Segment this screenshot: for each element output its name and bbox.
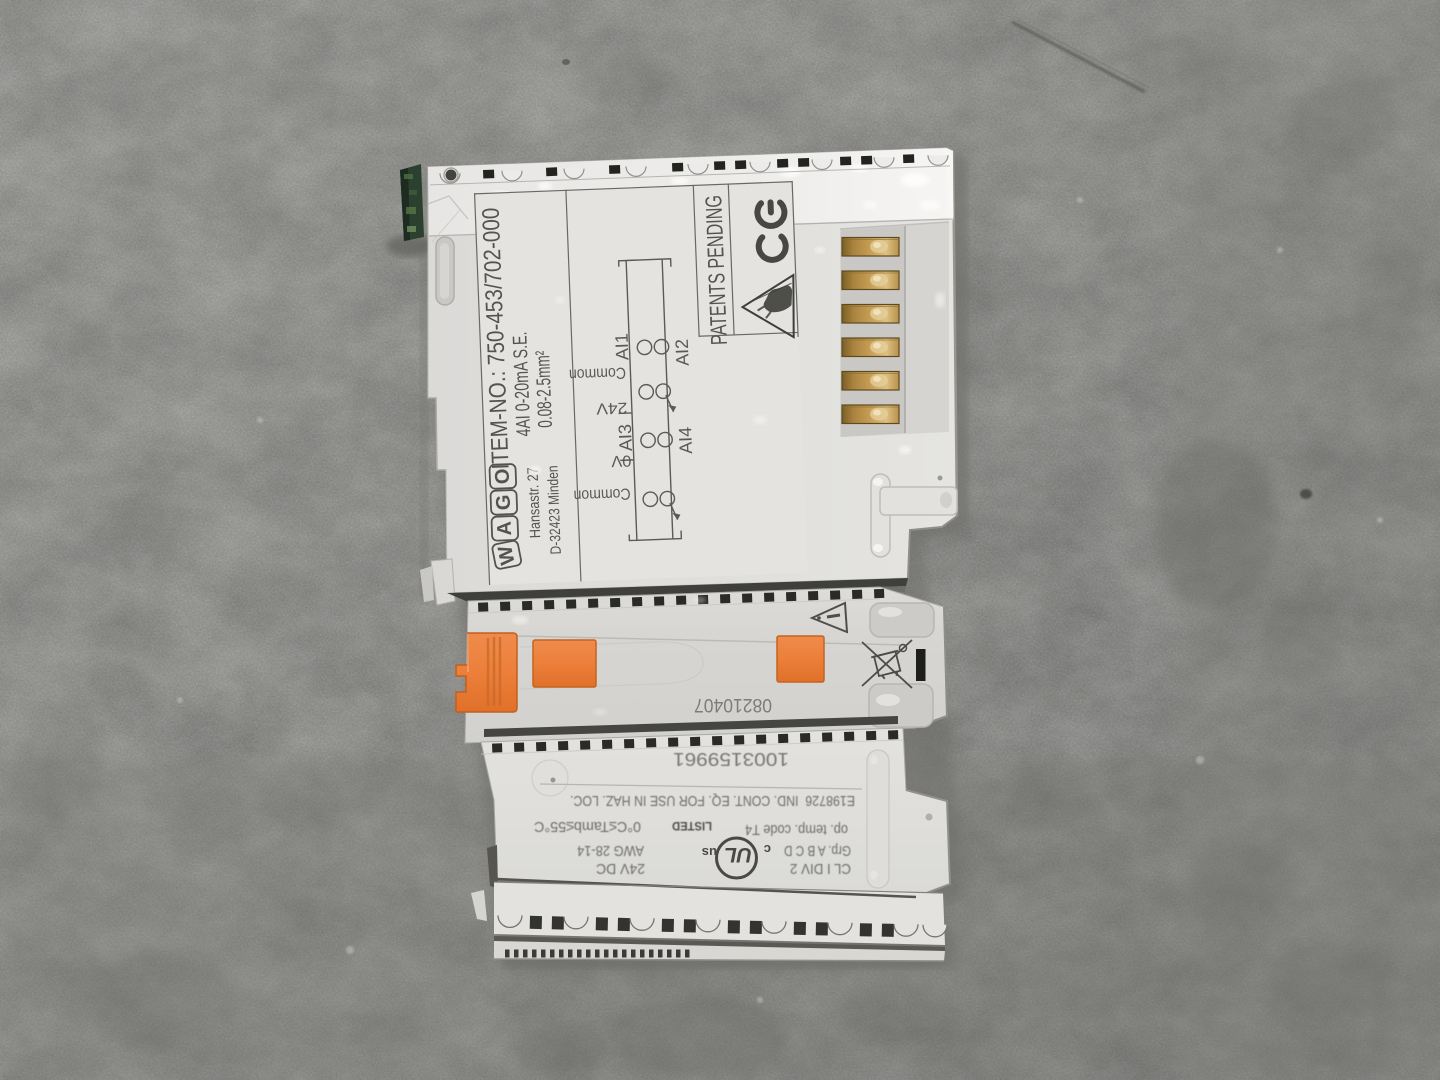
svg-text:AI1: AI1 (611, 333, 632, 361)
svg-text:Hansastr. 27: Hansastr. 27 (525, 467, 545, 539)
svg-text:AI4: AI4 (675, 426, 696, 454)
svg-text:UL: UL (724, 843, 752, 866)
svg-text:op. temp. code T4: op. temp. code T4 (745, 821, 848, 838)
svg-text:24V: 24V (596, 399, 628, 417)
svg-text:G: G (493, 494, 516, 510)
svg-text:CL I DIV 2: CL I DIV 2 (790, 860, 851, 877)
svg-text:0.08-2.5mm²: 0.08-2.5mm² (532, 350, 557, 428)
svg-text:08210407: 08210407 (694, 694, 772, 715)
svg-text:4AI 0-20mA S.E.: 4AI 0-20mA S.E. (509, 331, 535, 437)
svg-text:AWG 28-14: AWG 28-14 (577, 842, 644, 859)
svg-text:LISTED: LISTED (672, 819, 712, 833)
svg-text:E198726 IND. CONT. EQ. FOR US: E198726 IND. CONT. EQ. FOR USE IN HAZ. L… (570, 792, 855, 809)
svg-text:0°C≤Tamb≤55°C: 0°C≤Tamb≤55°C (534, 818, 641, 835)
svg-text:AI3: AI3 (615, 424, 636, 452)
svg-text:us: us (702, 845, 717, 860)
svg-text:D-32423 Minden: D-32423 Minden (544, 465, 564, 555)
svg-text:24V DC: 24V DC (596, 860, 645, 877)
svg-text:0V: 0V (611, 451, 632, 469)
svg-text:AI2: AI2 (672, 339, 693, 367)
svg-text:Grp. A B C D: Grp. A B C D (784, 842, 851, 859)
svg-text:Common: Common (573, 485, 631, 504)
svg-text:c: c (764, 842, 771, 857)
svg-text:A: A (494, 521, 517, 536)
svg-text:Common: Common (569, 364, 627, 383)
svg-text:1003159961: 1003159961 (673, 749, 789, 769)
